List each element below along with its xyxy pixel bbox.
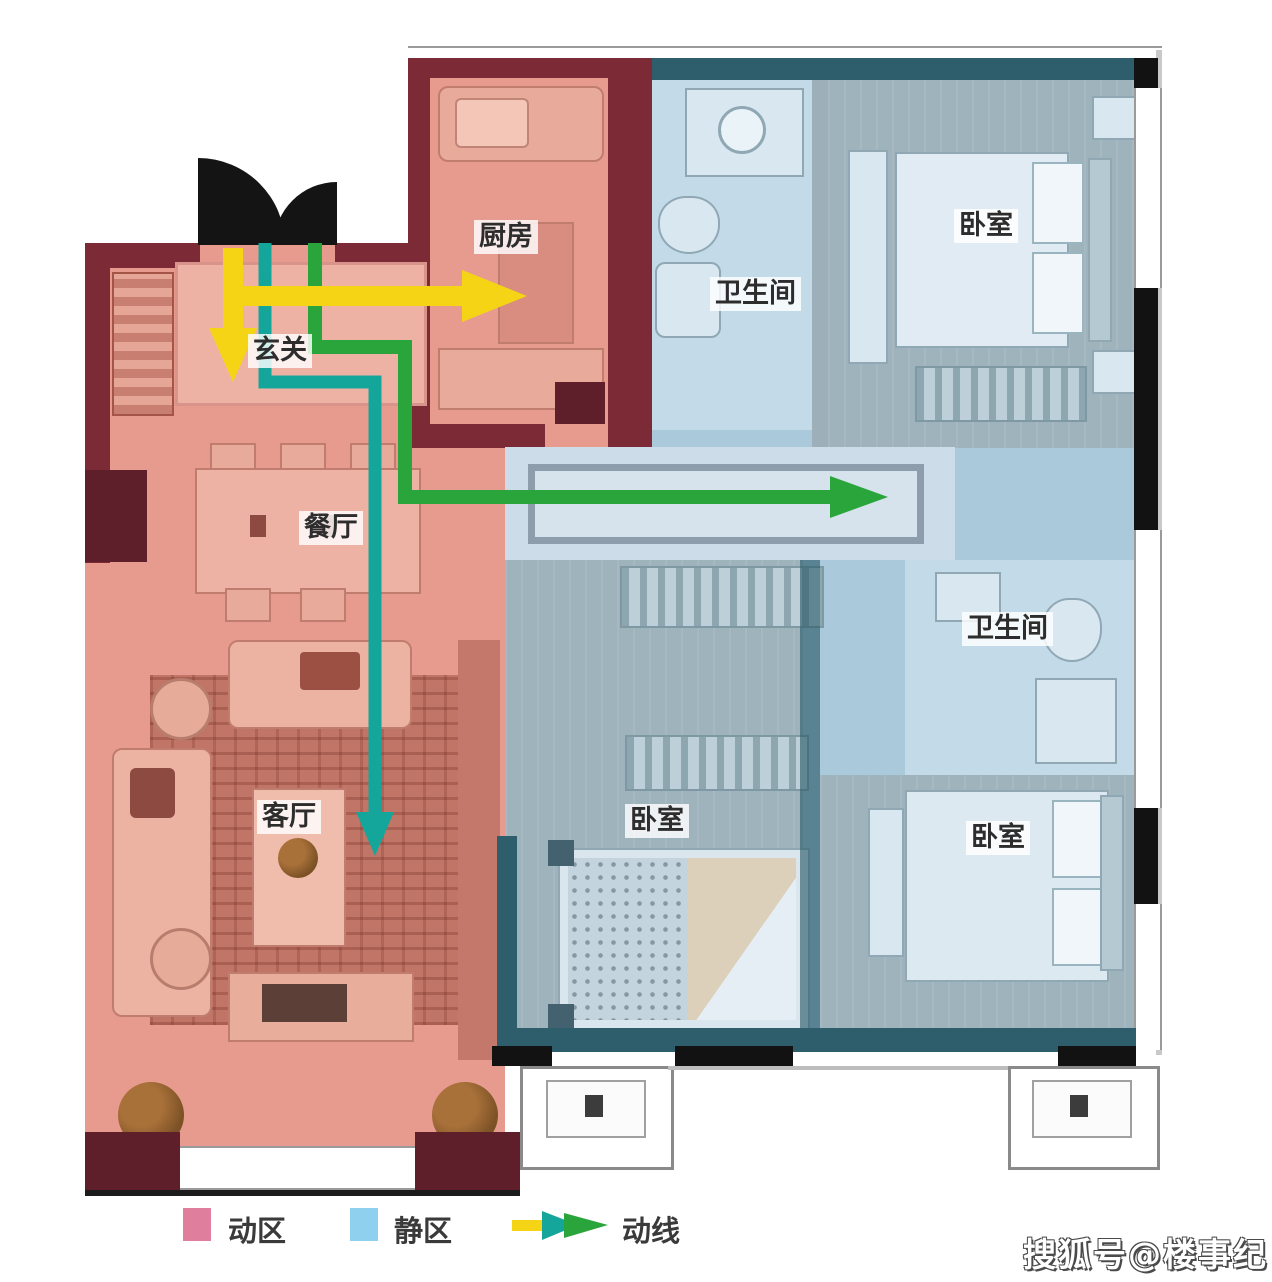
bedroom3-bench (868, 808, 904, 957)
bathroom1-toilet (658, 196, 720, 254)
corridor-cabinet (528, 464, 924, 544)
bathroom2-shower (1035, 678, 1117, 764)
wall-bottom-black (675, 1046, 793, 1066)
bedroom1-dresser (848, 150, 888, 364)
kitchen-cabinet (555, 382, 605, 424)
kitchen-sink (455, 98, 529, 148)
bedroom2-quilt (568, 858, 688, 1020)
window-right-bottom (1134, 904, 1162, 1050)
bedroom1-nightstand (1092, 96, 1136, 140)
balcony-right-detail (1070, 1095, 1088, 1117)
window-right-top (1134, 88, 1162, 288)
dining-table-setting (250, 515, 266, 537)
living-right-wall (458, 640, 500, 1060)
living-window (180, 1146, 415, 1190)
bed-post (548, 1004, 574, 1030)
watermark: 搜狐号@楼事纪 (1023, 1228, 1268, 1276)
room-label-bedroom1: 卧室 (954, 209, 1018, 243)
room-label-entry: 玄关 (248, 334, 312, 368)
bottom-wall-block-left (85, 1132, 180, 1192)
bathroom1-bedroom1-wall (812, 80, 828, 448)
door-arc-right-icon (274, 182, 337, 245)
bottom-wall-block-right (415, 1132, 520, 1192)
bedroom1-headboard (1088, 158, 1112, 342)
bedroom2-blanket (688, 858, 796, 1020)
legend-flow-arrow-icon (512, 1210, 612, 1240)
bedroom1-pillow (1032, 162, 1084, 244)
bedroom2-closet-mid (625, 735, 809, 791)
bedroom2-right-wall (800, 560, 820, 1030)
bedroom1-pillow (1032, 252, 1084, 334)
legend-active-swatch (183, 1208, 211, 1241)
wall-right-seg (1134, 58, 1158, 88)
room-label-bathroom1: 卫生间 (710, 277, 801, 311)
wall-right-seg (1134, 808, 1158, 904)
dining-chair (300, 588, 346, 622)
door-arc-left-icon (198, 158, 285, 245)
bedroom3-headboard (1100, 795, 1124, 971)
bedroom3-pillow (1052, 888, 1102, 966)
bathroom1-drain (718, 106, 766, 154)
tv-set (262, 984, 347, 1022)
sofa-pillow (130, 768, 175, 818)
legend-quiet-swatch (350, 1208, 378, 1241)
room-label-bathroom2: 卫生间 (962, 612, 1053, 646)
wall-right-seg (1134, 288, 1158, 530)
wall-living-bedroom2 (497, 836, 517, 1050)
wall-bottom-black (492, 1046, 552, 1066)
left-wall-block (85, 470, 147, 562)
legend-flow-label: 动线 (622, 1208, 680, 1250)
window-right-mid (1134, 530, 1162, 808)
room-label-bedroom3: 卧室 (966, 821, 1030, 855)
side-table (150, 928, 212, 990)
legend-quiet-label: 静区 (394, 1208, 452, 1250)
room-label-living: 客厅 (257, 800, 321, 834)
side-table (150, 678, 212, 740)
bottom-outline (85, 1190, 520, 1196)
floor-plan: 玄关 厨房 餐厅 客厅 卫生间 卧室 卫生间 卧室 卧室 动区 静区 动线 搜狐… (0, 0, 1272, 1282)
dining-chair (225, 588, 271, 622)
room-label-dining: 餐厅 (299, 511, 363, 545)
balcony-rail-line (668, 1066, 1008, 1070)
balcony-left-detail (585, 1095, 603, 1117)
bedroom3-pillow (1052, 800, 1102, 878)
bedroom1-nightstand (1092, 350, 1136, 394)
sofa-cushion (300, 652, 360, 690)
bedroom2-closet-top (620, 566, 824, 628)
bedroom1-wardrobe (915, 366, 1087, 422)
bed-post (548, 840, 574, 866)
wall-top-quiet (652, 58, 1136, 80)
entry-shoe-cabinet (112, 272, 174, 416)
room-label-bedroom2: 卧室 (625, 804, 689, 838)
room-label-kitchen: 厨房 (474, 220, 538, 254)
wall-bottom-quiet (505, 1028, 1136, 1052)
kitchen-door-opening (545, 420, 608, 448)
wall-bottom-black (1058, 1046, 1136, 1066)
table-plant (278, 838, 318, 878)
legend-active-label: 动区 (228, 1208, 286, 1250)
